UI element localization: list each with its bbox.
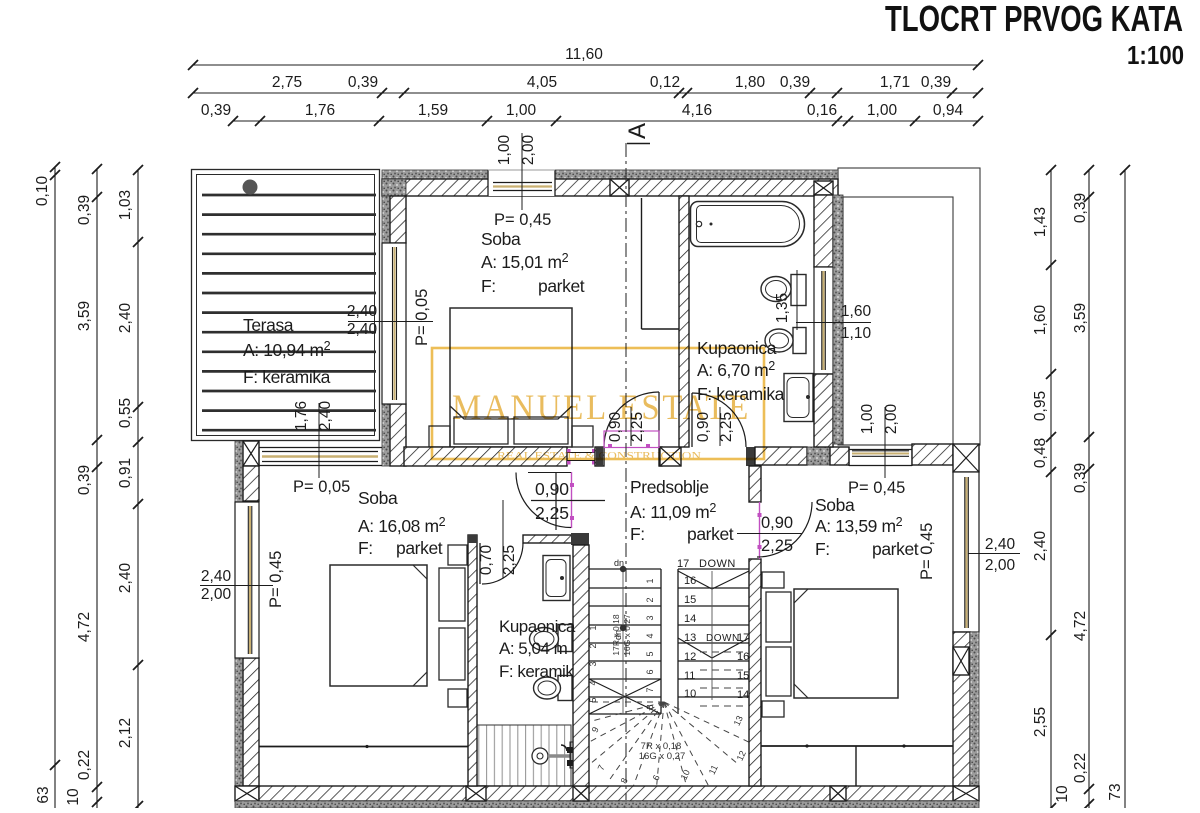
svg-text:TLOCRT PRVOG KATA: TLOCRT PRVOG KATA — [885, 0, 1183, 39]
svg-text:2,40: 2,40 — [317, 401, 334, 432]
svg-text:0,70: 0,70 — [478, 545, 495, 576]
svg-text:2,40: 2,40 — [347, 321, 378, 338]
svg-text:14: 14 — [737, 689, 749, 701]
svg-text:2,00: 2,00 — [883, 404, 900, 435]
svg-text:P= 0,45: P= 0,45 — [267, 551, 285, 608]
svg-text:parket: parket — [872, 539, 919, 559]
svg-text:P= 0,05: P= 0,05 — [413, 289, 431, 346]
svg-text:2: 2 — [645, 597, 655, 602]
svg-text:P= 0,45: P= 0,45 — [494, 211, 551, 229]
svg-text:dn: dn — [614, 558, 624, 568]
svg-text:A: 5,04 m: A: 5,04 m — [499, 639, 568, 658]
svg-text:parket: parket — [396, 538, 443, 558]
svg-text:0,12: 0,12 — [650, 74, 680, 91]
svg-text:12: 12 — [684, 651, 696, 663]
svg-text:F:: F: — [481, 276, 496, 296]
svg-text:5: 5 — [645, 651, 655, 656]
svg-text:2,00: 2,00 — [201, 586, 232, 603]
svg-text:1,59: 1,59 — [418, 102, 448, 119]
svg-text:2,40: 2,40 — [985, 536, 1016, 553]
svg-text:2,40: 2,40 — [347, 303, 378, 320]
svg-text:1,76: 1,76 — [305, 102, 335, 119]
svg-text:13: 13 — [684, 632, 696, 644]
svg-text:P= 0,45: P= 0,45 — [918, 523, 936, 580]
svg-text:0,39: 0,39 — [1072, 193, 1089, 223]
svg-text:F:: F: — [630, 524, 645, 544]
svg-text:2,40: 2,40 — [117, 563, 134, 594]
svg-text:63: 63 — [35, 786, 52, 803]
svg-text:P= 0,05: P= 0,05 — [293, 478, 350, 496]
svg-text:2,12: 2,12 — [117, 718, 134, 748]
svg-text:Soba: Soba — [481, 229, 521, 249]
svg-text:Soba: Soba — [815, 495, 855, 515]
svg-text:14: 14 — [684, 613, 696, 625]
svg-text:1,00: 1,00 — [506, 102, 537, 119]
svg-text:3,59: 3,59 — [76, 301, 93, 331]
svg-text:2,25: 2,25 — [501, 545, 518, 575]
svg-text:4,16: 4,16 — [682, 102, 712, 119]
svg-text:15: 15 — [737, 670, 749, 682]
svg-text:0,39: 0,39 — [76, 465, 93, 495]
svg-text:Kupaonica: Kupaonica — [499, 617, 576, 636]
svg-text:10: 10 — [65, 788, 82, 806]
svg-text:parket: parket — [538, 276, 585, 296]
svg-text:2,00: 2,00 — [985, 557, 1016, 574]
svg-text:F: keramik: F: keramik — [499, 662, 574, 681]
svg-text:0,22: 0,22 — [76, 750, 93, 780]
svg-text:16G x 0,27: 16G x 0,27 — [639, 751, 685, 762]
svg-text:A: 10,94 m2: A: 10,94 m2 — [243, 339, 331, 360]
svg-text:16: 16 — [684, 575, 696, 587]
svg-text:0,90: 0,90 — [761, 514, 793, 532]
svg-text:MANUEL ESTATE: MANUEL ESTATE — [452, 387, 751, 427]
svg-text:0,91: 0,91 — [117, 458, 134, 488]
svg-text:2,40: 2,40 — [201, 568, 232, 585]
svg-text:F:: F: — [358, 538, 373, 558]
svg-text:2,75: 2,75 — [272, 74, 302, 91]
svg-text:11,60: 11,60 — [565, 46, 603, 63]
svg-text:0,22: 0,22 — [1072, 753, 1089, 783]
svg-text:2,25: 2,25 — [535, 503, 569, 523]
svg-text:16: 16 — [737, 651, 749, 663]
svg-text:1,60: 1,60 — [1032, 305, 1049, 336]
svg-text:17: 17 — [677, 558, 689, 570]
svg-text:1,00: 1,00 — [496, 135, 513, 166]
svg-text:0,39: 0,39 — [1072, 463, 1089, 493]
svg-text:1,00: 1,00 — [867, 102, 898, 119]
svg-text:F: keramika: F: keramika — [243, 367, 331, 387]
svg-text:2,25: 2,25 — [761, 537, 793, 555]
svg-text:8: 8 — [645, 704, 655, 709]
svg-text:1,00: 1,00 — [859, 404, 876, 435]
svg-text:0,94: 0,94 — [933, 102, 964, 119]
svg-text:DOWN: DOWN — [706, 633, 740, 644]
svg-text:4,72: 4,72 — [76, 612, 93, 642]
svg-text:4,05: 4,05 — [527, 74, 557, 91]
svg-text:10: 10 — [1054, 785, 1071, 803]
svg-text:3: 3 — [645, 615, 655, 620]
svg-text:A: 16,08 m2: A: 16,08 m2 — [358, 515, 446, 536]
svg-text:0,39: 0,39 — [76, 195, 93, 225]
svg-text:Terasa: Terasa — [243, 315, 294, 335]
svg-text:Predsoblje: Predsoblje — [630, 477, 709, 497]
svg-text:Soba: Soba — [358, 488, 398, 508]
svg-text:1,80: 1,80 — [735, 74, 766, 91]
svg-text:3,59: 3,59 — [1072, 303, 1089, 333]
svg-text:0,90: 0,90 — [535, 479, 569, 499]
svg-text:A: 11,09 m2: A: 11,09 m2 — [630, 501, 716, 522]
svg-text:P= 0,45: P= 0,45 — [848, 479, 905, 497]
svg-text:0,39: 0,39 — [780, 74, 810, 91]
svg-text:0,16: 0,16 — [807, 102, 837, 119]
svg-text:2,55: 2,55 — [1032, 707, 1049, 737]
svg-text:4: 4 — [645, 633, 655, 638]
svg-text:1,60: 1,60 — [841, 303, 872, 320]
svg-text:1,10: 1,10 — [841, 325, 872, 342]
svg-text:A: A — [624, 123, 651, 139]
svg-text:1,76: 1,76 — [293, 401, 310, 431]
svg-text:0,39: 0,39 — [348, 74, 378, 91]
svg-text:0,39: 0,39 — [921, 74, 951, 91]
svg-text:1,03: 1,03 — [117, 190, 134, 220]
svg-text:0,95: 0,95 — [1032, 391, 1049, 421]
svg-text:0,10: 0,10 — [34, 176, 51, 207]
svg-text:1,35: 1,35 — [774, 293, 791, 323]
svg-text:0,39: 0,39 — [201, 102, 231, 119]
svg-text:parket: parket — [687, 524, 734, 544]
svg-text:16G x 0,27: 16G x 0,27 — [622, 614, 632, 656]
svg-text:REAL ESTATE & CONSTRUCTION: REAL ESTATE & CONSTRUCTION — [497, 450, 701, 462]
svg-text:0,48: 0,48 — [1032, 438, 1049, 468]
svg-text:1: 1 — [645, 578, 655, 583]
svg-text:A: 13,59 m2: A: 13,59 m2 — [815, 515, 903, 536]
svg-text:1,71: 1,71 — [880, 74, 910, 91]
svg-text:4,72: 4,72 — [1072, 611, 1089, 641]
svg-text:DOWN: DOWN — [699, 558, 736, 570]
svg-text:1:100: 1:100 — [1127, 40, 1184, 70]
svg-text:0,55: 0,55 — [117, 398, 134, 428]
svg-text:2,00: 2,00 — [520, 135, 537, 166]
svg-text:6: 6 — [645, 669, 655, 674]
svg-text:7: 7 — [645, 687, 655, 692]
svg-text:10: 10 — [684, 688, 696, 700]
svg-text:2,40: 2,40 — [1032, 531, 1049, 562]
svg-text:17: 17 — [737, 632, 749, 644]
svg-text:2,40: 2,40 — [117, 303, 134, 334]
svg-text:F:: F: — [815, 539, 830, 559]
svg-text:1,43: 1,43 — [1032, 207, 1049, 237]
svg-text:17R x 0,18: 17R x 0,18 — [611, 614, 621, 655]
svg-text:15: 15 — [684, 594, 696, 606]
svg-text:A: 15,01 m2: A: 15,01 m2 — [481, 251, 569, 272]
svg-text:73: 73 — [1107, 783, 1124, 800]
svg-text:11: 11 — [684, 670, 695, 682]
